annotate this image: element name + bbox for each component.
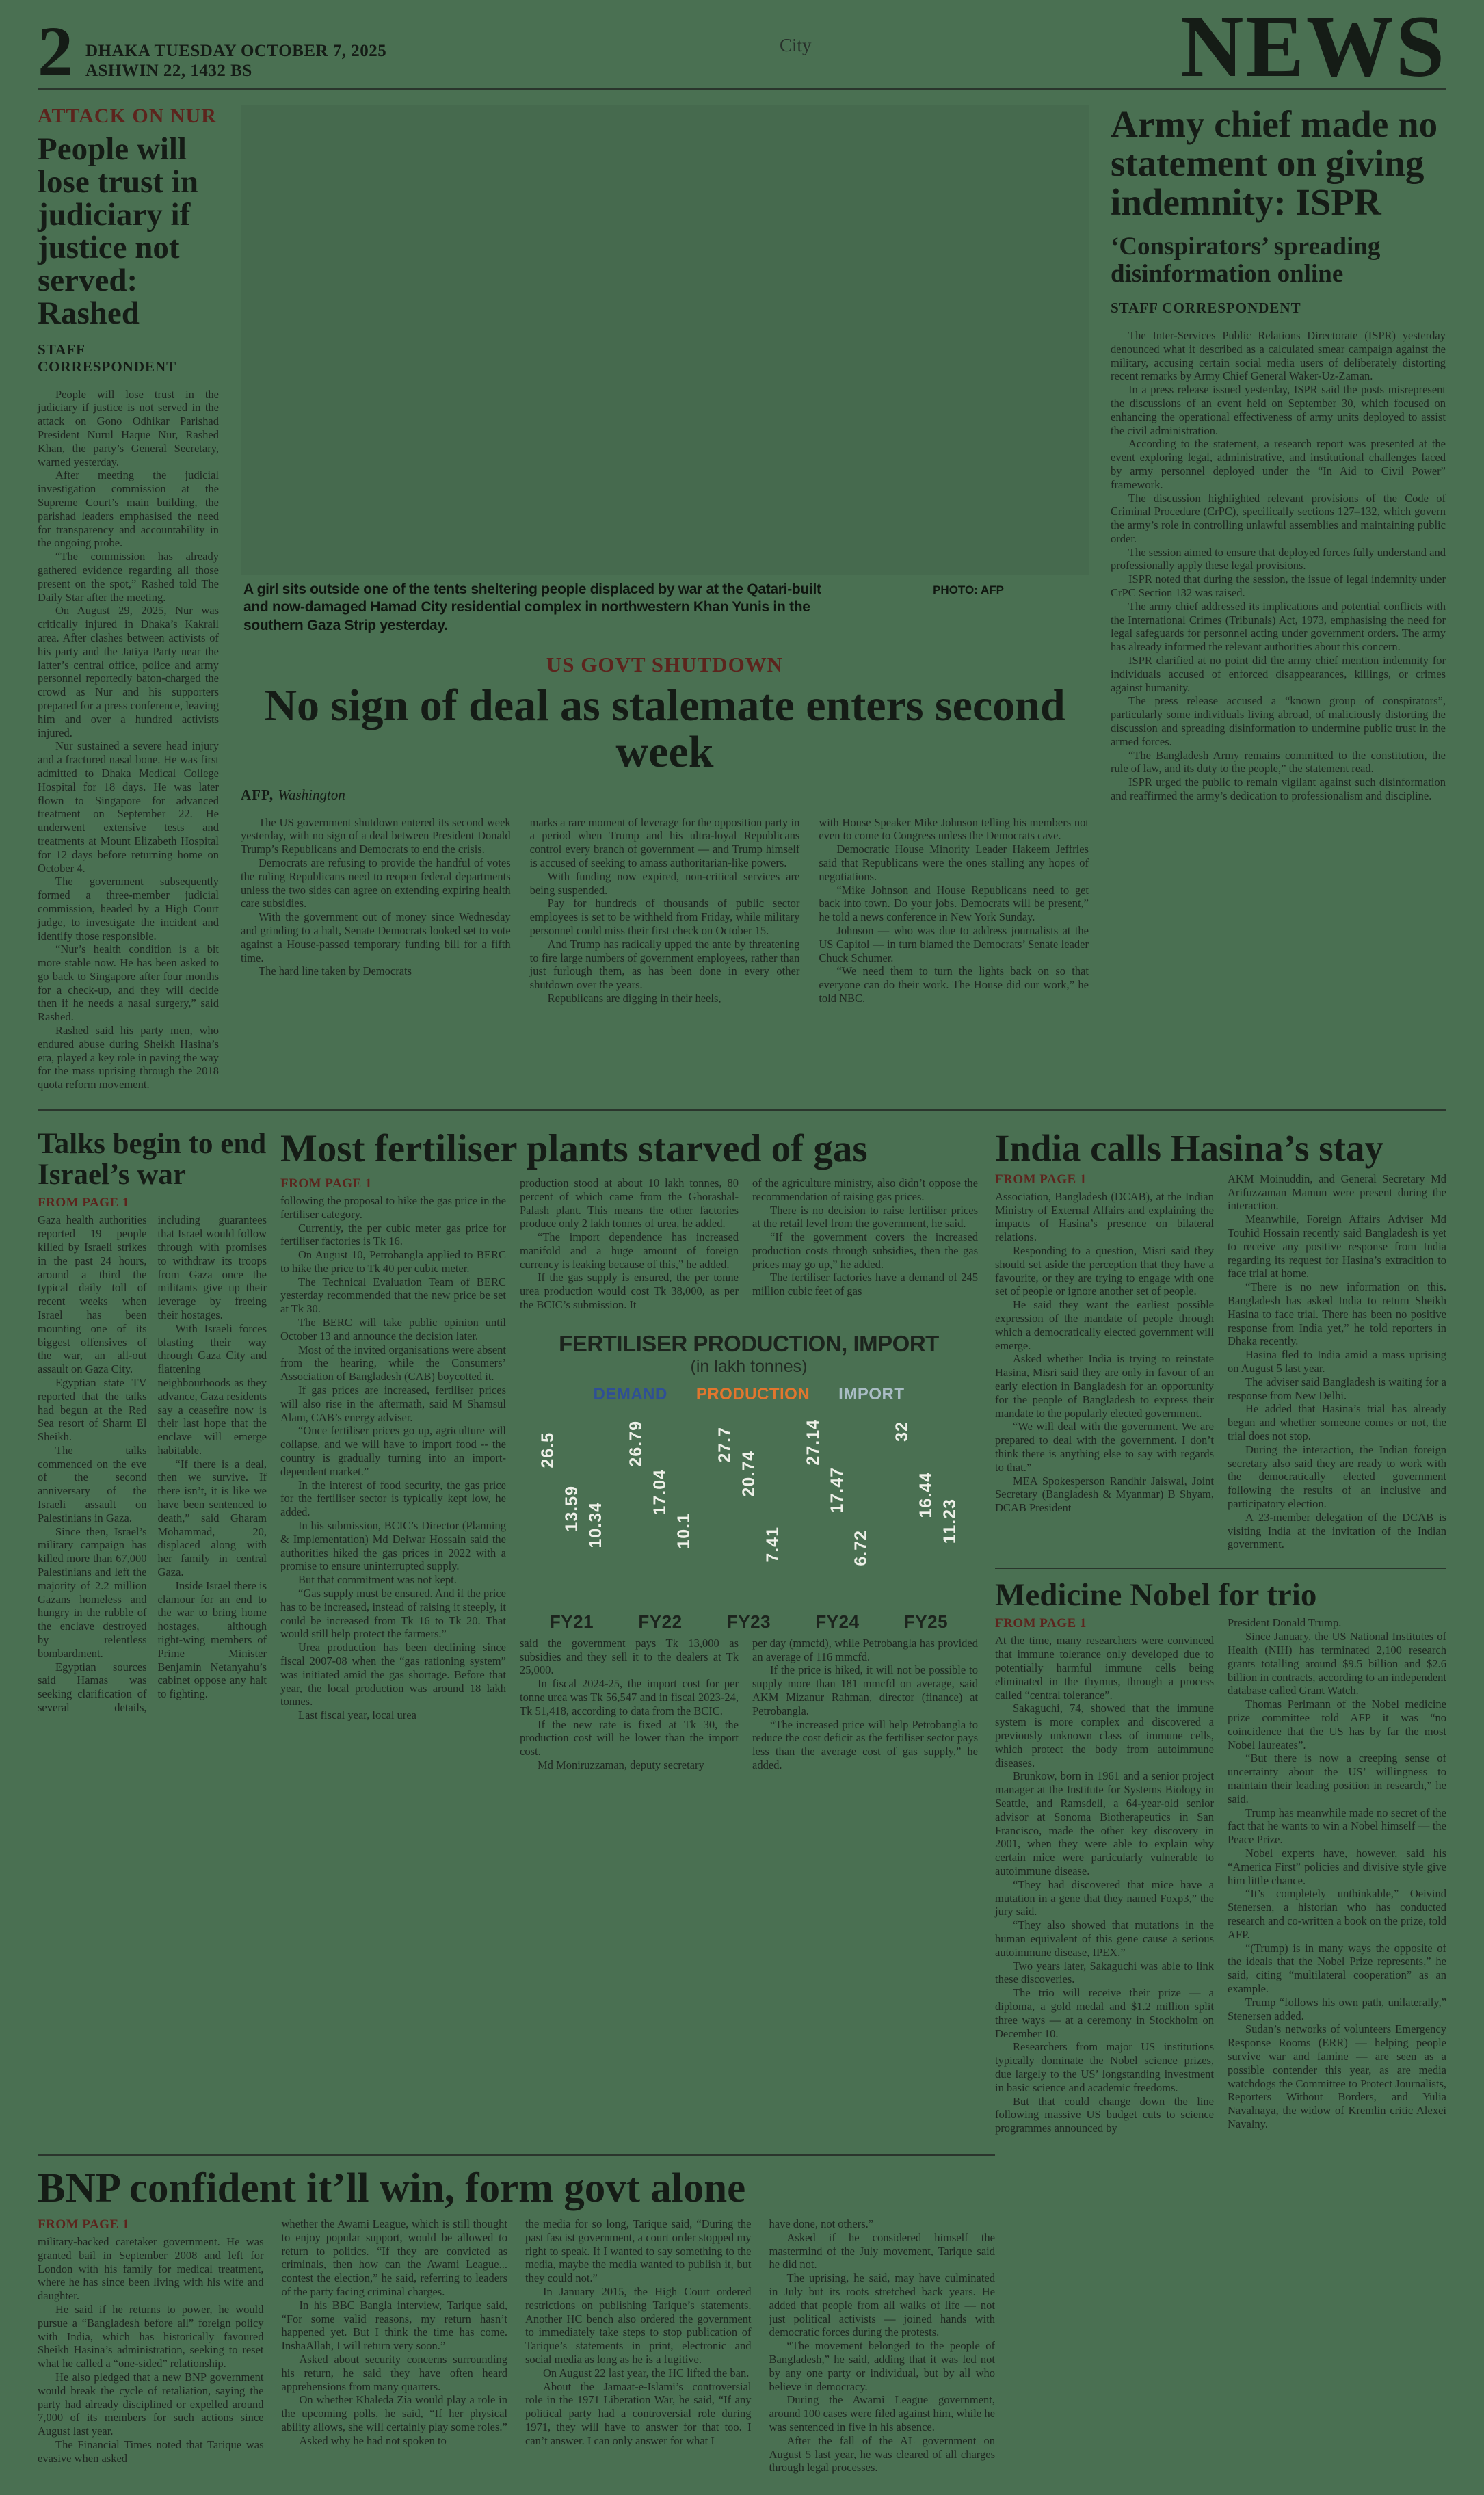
paragraph: Researchers from major US institutions t…	[995, 2040, 1214, 2094]
paragraph: The adviser said Bangladesh is waiting f…	[1228, 1375, 1446, 1403]
body-column-2: marks a rare moment of leverage for the …	[530, 816, 800, 1005]
bar-import-fy21	[585, 1550, 606, 1601]
paragraph: Responding to a question, Misri said the…	[995, 1244, 1214, 1298]
body-column-1: The US government shutdown entered its s…	[241, 816, 511, 1005]
paragraph: After meeting the judicial investigation…	[38, 468, 219, 550]
paragraph: In fiscal 2024-25, the import cost for p…	[520, 1677, 739, 1717]
paragraph: He said if he returns to power, he would…	[38, 2303, 264, 2371]
edition-label: City	[780, 35, 812, 56]
body-column-3-bottom: per day (mmcfd), while Petrobangla has p…	[752, 1637, 978, 1772]
paragraph: But that could change down the line foll…	[995, 2095, 1214, 2135]
from-page-label: FROM PAGE 1	[995, 1172, 1214, 1187]
article-headline: Army chief made no statement on giving i…	[1111, 105, 1446, 222]
from-page-label: FROM PAGE 1	[280, 1176, 506, 1191]
column-text: At the time, many researchers were convi…	[995, 1634, 1214, 2135]
paragraph: Hasina fled to India amid a mass uprisin…	[1228, 1348, 1446, 1375]
bar-demand-fy21	[538, 1471, 558, 1602]
body-column-1: FROM PAGE 1 military-backed caretaker go…	[38, 2217, 264, 2474]
article-fertiliser: Most fertiliser plants starved of gas FR…	[280, 1128, 978, 2135]
paragraph: Sudan’s networks of volunteers Emergency…	[1228, 2022, 1446, 2130]
middle-right: India calls Hasina’s stay FROM PAGE 1 As…	[995, 1128, 1446, 2135]
paragraph: If the gas supply is ensured, the per to…	[520, 1271, 739, 1311]
paragraph: marks a rare moment of leverage for the …	[530, 816, 800, 870]
body-column-1: FROM PAGE 1 following the proposal to hi…	[280, 1176, 506, 1772]
bar-production-fy23	[739, 1500, 759, 1602]
paragraph: “The movement belonged to the people of …	[769, 2339, 996, 2393]
article-medicine-nobel: Medicine Nobel for trio FROM PAGE 1 At t…	[995, 1568, 1446, 2135]
bar-demand-fy22	[626, 1470, 647, 1602]
paragraph: Association, Bangladesh (DCAB), at the I…	[995, 1190, 1214, 1244]
paragraph: “If there is a deal, then we survive. If…	[158, 1457, 267, 1579]
article-headline: Talks begin to end Israel’s war	[38, 1128, 267, 1190]
paragraph: Gaza health authorities reported 19 peop…	[38, 1213, 147, 1376]
chart-group-fy23: 27.720.747.41FY23	[715, 1384, 783, 1633]
bar-value-label: 10.34	[587, 1502, 605, 1551]
body-column-4: have done, not others.”Asked if he consi…	[769, 2217, 996, 2474]
paragraph: During the interaction, the Indian forei…	[1228, 1443, 1446, 1511]
article-kicker: US GOVT SHUTDOWN	[241, 652, 1089, 677]
paragraph: Urea production has been declining since…	[280, 1641, 506, 1708]
chart-subtitle: (in lakh tonnes)	[520, 1357, 978, 1377]
paragraph: In his submission, BCIC’s Director (Plan…	[280, 1519, 506, 1573]
bar-value-label: 17.04	[652, 1469, 669, 1518]
paragraph: Trump “follows his own path, unilaterall…	[1228, 1996, 1446, 2023]
bar-stack-import: 10.34	[585, 1384, 606, 1602]
paragraph: military-backed caretaker government. He…	[38, 2235, 264, 2303]
category-label: FY23	[727, 1611, 771, 1633]
paragraph: ISPR urged the public to remain vigilant…	[1111, 776, 1446, 803]
paragraph: Republicans are digging in their heels,	[530, 992, 800, 1005]
paragraph: The uprising, he said, may have culminat…	[769, 2271, 996, 2339]
article-bnp: BNP confident it’ll win, form govt alone…	[38, 2167, 995, 2474]
paragraph: Nobel experts have, however, said his “A…	[1228, 1847, 1446, 1887]
paragraph: “They had discovered that mice have a mu…	[995, 1878, 1214, 1918]
paragraph: Currently, the per cubic meter gas price…	[280, 1222, 506, 1249]
chart-group-fy22: 26.7917.0410.1FY22	[626, 1384, 695, 1633]
bar-value-label: 20.74	[741, 1451, 758, 1500]
paragraph: Pay for hundreds of thousands of public …	[530, 897, 800, 937]
article-headline: People will lose trust in judiciary if j…	[38, 133, 219, 330]
article-shutdown: US GOVT SHUTDOWN No sign of deal as stal…	[241, 635, 1089, 1005]
paragraph: Nur sustained a severe head injury and a…	[38, 739, 219, 875]
paragraph: The discussion highlighted relevant prov…	[1111, 492, 1446, 546]
paragraph: In January 2015, the High Court ordered …	[525, 2285, 752, 2366]
bar-cluster: 26.7917.0410.1	[626, 1384, 695, 1602]
paragraph: On August 22 last year, the HC lifted th…	[525, 2366, 752, 2380]
chart-group-fy21: 26.513.5910.34FY21	[538, 1384, 606, 1633]
paragraph: The session aimed to ensure that deploye…	[1111, 546, 1446, 573]
bar-value-label: 13.59	[564, 1486, 581, 1535]
bar-stack-production: 13.59	[561, 1384, 582, 1602]
body-column-3: with House Speaker Mike Johnson telling …	[819, 816, 1089, 1005]
article-talks: Talks begin to end Israel’s war FROM PAG…	[38, 1128, 267, 2135]
article-body: FROM PAGE 1 Association, Bangladesh (DCA…	[995, 1172, 1446, 1551]
article-body: People will lose trust in the judiciary …	[38, 388, 219, 1092]
bar-import-fy22	[674, 1552, 695, 1602]
category-label: FY24	[815, 1611, 859, 1633]
body-column-3: the media for so long, Tarique said, “Du…	[525, 2217, 752, 2474]
paragraph: On August 10, Petrobangla applied to BER…	[280, 1248, 506, 1276]
paragraph: The US government shutdown entered its s…	[241, 816, 511, 856]
body-column-1: FROM PAGE 1 Association, Bangladesh (DCA…	[995, 1172, 1214, 1551]
paragraph: “But there is now a creeping sense of un…	[1228, 1752, 1446, 1806]
paragraph: “We need them to turn the lights back on…	[819, 964, 1089, 1005]
paragraph: With Israeli forces blasting their way t…	[158, 1322, 267, 1457]
bar-value-label: 27.7	[717, 1427, 734, 1466]
article-body: FROM PAGE 1 military-backed caretaker go…	[38, 2217, 995, 2474]
from-page-label: FROM PAGE 1	[38, 2217, 264, 2232]
bar-stack-import: 11.23	[940, 1384, 960, 1602]
paragraph: “If the government covers the increased …	[752, 1230, 978, 1271]
article-body: FROM PAGE 1 following the proposal to hi…	[280, 1176, 978, 1772]
bar-cluster: 27.720.747.41	[715, 1384, 783, 1602]
paragraph: Since January, the US National Institute…	[1228, 1630, 1446, 1698]
column-text: military-backed caretaker government. He…	[38, 2235, 264, 2466]
category-label: FY21	[550, 1611, 594, 1633]
paragraph: following the proposal to hike the gas p…	[280, 1194, 506, 1222]
paragraph: Democratic House Minority Leader Hakeem …	[819, 843, 1089, 883]
paragraph: According to the statement, a research r…	[1111, 437, 1446, 491]
body-column-2-bottom: said the government pays Tk 13,000 as su…	[520, 1637, 739, 1772]
bar-import-fy25	[940, 1546, 960, 1602]
paragraph: Thomas Perlmann of the Nobel medicine pr…	[1228, 1698, 1446, 1752]
paragraph: have done, not others.”	[769, 2217, 996, 2231]
paragraph: Johnson — who was due to address journal…	[819, 924, 1089, 964]
paragraph: “The import dependence has increased man…	[520, 1230, 739, 1271]
paragraph: “It’s completely unthinkable,” Oeivind S…	[1228, 1887, 1446, 1941]
bar-production-fy24	[827, 1516, 848, 1602]
news-photo	[241, 105, 1089, 575]
photo-caption-row: A girl sits outside one of the tents she…	[241, 575, 1089, 635]
bar-value-label: 11.23	[942, 1499, 959, 1546]
body-column-3-top: of the agriculture ministry, also didn’t…	[752, 1176, 978, 1312]
paragraph: The talks commenced on the eve of the se…	[38, 1444, 147, 1525]
article-body: Gaza health authorities reported 19 peop…	[38, 1213, 267, 1714]
bar-stack-demand: 26.79	[626, 1384, 647, 1602]
bar-production-fy21	[561, 1535, 582, 1602]
paragraph: “Nur’s health condition is a bit more st…	[38, 942, 219, 1024]
paragraph: On whether Khaleda Zia would play a role…	[282, 2393, 508, 2433]
middle-left: Talks begin to end Israel’s war FROM PAG…	[38, 1128, 978, 2135]
paragraph: In his BBC Bangla interview, Tarique sai…	[282, 2299, 508, 2353]
column-text: Association, Bangladesh (DCAB), at the I…	[995, 1190, 1214, 1515]
paragraph: Egyptian state TV reported that the talk…	[38, 1376, 147, 1444]
paragraph: “Mike Johnson and House Republicans need…	[819, 884, 1089, 924]
bar-production-fy25	[916, 1521, 936, 1602]
bar-cluster: 26.513.5910.34	[538, 1384, 606, 1602]
paragraph: “The Bangladesh Army remains committed t…	[1111, 749, 1446, 776]
paragraph: the media for so long, Tarique said, “Du…	[525, 2217, 752, 2285]
paragraph: “(Trump) is in many ways the opposite of…	[1228, 1942, 1446, 1996]
paragraph: In the interest of food security, the ga…	[280, 1479, 506, 1519]
paragraph: Last fiscal year, local urea	[280, 1708, 506, 1722]
column-text: following the proposal to hike the gas p…	[280, 1194, 506, 1722]
body-column-2-top: production stood at about 10 lakh tonnes…	[520, 1176, 739, 1312]
bar-value-label: 17.47	[829, 1467, 846, 1516]
bar-stack-production: 16.44	[916, 1384, 936, 1602]
article-kicker: ATTACK ON NUR	[38, 105, 219, 128]
paragraph: AKM Moinuddin, and General Secretary Md …	[1228, 1172, 1446, 1213]
paragraph: Trump has meanwhile made no secret of th…	[1228, 1806, 1446, 1847]
paragraph: The Inter-Services Public Relations Dire…	[1111, 329, 1446, 383]
paragraph: The trio will receive their prize — a di…	[995, 1986, 1214, 2040]
paragraph: If the new rate is fixed at Tk 30, the p…	[520, 1718, 739, 1758]
body-column-2: President Donald Trump.Since January, th…	[1228, 1616, 1446, 2135]
bar-value-label: 26.79	[628, 1421, 645, 1470]
from-page-label: FROM PAGE 1	[995, 1616, 1214, 1631]
article-body: FROM PAGE 1 At the time, many researcher…	[995, 1616, 1446, 2135]
bar-value-label: 6.72	[853, 1530, 870, 1569]
chart-group-fy24: 27.1417.476.72FY24	[804, 1384, 872, 1633]
article-headline: Most fertiliser plants starved of gas	[280, 1128, 978, 1170]
section-masthead: NEWS	[1180, 12, 1446, 81]
bar-stack-demand: 26.5	[538, 1384, 558, 1602]
paragraph: Asked about security concerns surroundin…	[282, 2353, 508, 2393]
bar-value-label: 10.1	[676, 1513, 693, 1552]
bar-value-label: 32	[894, 1421, 911, 1444]
paragraph: “They also showed that mutations in the …	[995, 1918, 1214, 1959]
paragraph: In a press release issued yesterday, ISP…	[1111, 383, 1446, 437]
body-column-2: whether the Awami League, which is still…	[282, 2217, 508, 2474]
paragraph: Two years later, Sakaguchi was able to l…	[995, 1959, 1214, 1987]
paragraph: A 23-member delegation of the DCAB is vi…	[1228, 1511, 1446, 1551]
paragraph: With funding now expired, non-critical s…	[530, 870, 800, 897]
bar-production-fy22	[650, 1518, 671, 1602]
paragraph: with House Speaker Mike Johnson telling …	[819, 816, 1089, 843]
article-headline: India calls Hasina’s stay	[995, 1128, 1446, 1168]
body-column-1: FROM PAGE 1 At the time, many researcher…	[995, 1616, 1214, 2135]
paragraph: About the Jamaat-e-Islami’s controversia…	[525, 2380, 752, 2448]
article-body: The Inter-Services Public Relations Dire…	[1111, 329, 1446, 803]
paragraph: Rashed said his party men, who endured a…	[38, 1024, 219, 1092]
paragraph: He said they want the earliest possible …	[995, 1298, 1214, 1352]
paragraph: But that commitment was not kept.	[280, 1573, 506, 1587]
chart-title: FERTILISER PRODUCTION, IMPORT	[520, 1331, 978, 1357]
paragraph: The hard line taken by Democrats	[241, 964, 511, 978]
paragraph: If gas prices are increased, fertiliser …	[280, 1384, 506, 1424]
paragraph: Sakaguchi, 74, showed that the immune sy…	[995, 1702, 1214, 1769]
fertiliser-chart: FERTILISER PRODUCTION, IMPORT(in lakh to…	[520, 1312, 978, 1637]
paragraph: Inside Israel there is clamour for an en…	[158, 1579, 267, 1701]
byline-agency: AFP,	[241, 787, 274, 803]
from-page-label: FROM PAGE 1	[38, 1196, 267, 1211]
bar-value-label: 7.41	[765, 1527, 782, 1566]
article-byline: AFP, Washington	[241, 787, 1089, 804]
paragraph: The government subsequently formed a thr…	[38, 875, 219, 942]
paragraph: President Donald Trump.	[1228, 1616, 1446, 1630]
bar-stack-import: 6.72	[851, 1384, 872, 1602]
bar-import-fy23	[763, 1566, 783, 1602]
paragraph: “The commission has already gathered evi…	[38, 550, 219, 604]
paragraph: Md Moniruzzaman, deputy secretary	[520, 1758, 739, 1772]
paragraph: “The increased price will help Petrobang…	[752, 1718, 978, 1772]
chart-plot: 26.513.5910.34FY2126.7917.0410.1FY2227.7…	[520, 1407, 978, 1633]
body-column-2: AKM Moinuddin, and General Secretary Md …	[1228, 1172, 1446, 1551]
paragraph: There is no decision to raise fertiliser…	[752, 1204, 978, 1231]
paragraph: With the government out of money since W…	[241, 910, 511, 964]
paragraph: If the price is hiked, it will not be po…	[752, 1663, 978, 1717]
paragraph: ISPR noted that during the session, the …	[1111, 572, 1446, 600]
paragraph: After the fall of the AL government on A…	[769, 2434, 996, 2474]
category-label: FY25	[904, 1611, 948, 1633]
paragraph: He also pledged that a new BNP governmen…	[38, 2371, 264, 2438]
category-label: FY22	[638, 1611, 682, 1633]
bar-value-label: 16.44	[918, 1472, 935, 1521]
paragraph: production stood at about 10 lakh tonnes…	[520, 1176, 739, 1230]
bar-stack-import: 7.41	[763, 1384, 783, 1602]
paragraph: per day (mmcfd), while Petrobangla has p…	[752, 1637, 978, 1664]
paragraph: The army chief addressed its implication…	[1111, 600, 1446, 654]
bar-import-fy24	[851, 1569, 872, 1602]
article-byline: STAFF CORRESPONDENT	[38, 341, 219, 375]
bar-stack-production: 17.47	[827, 1384, 848, 1602]
date-block: DHAKA TUESDAY OCTOBER 7, 2025 ASHWIN 22,…	[85, 41, 386, 81]
date-line-2: ASHWIN 22, 1432 BS	[85, 61, 386, 81]
paragraph: The BERC will take public opinion until …	[280, 1316, 506, 1343]
paragraph: The press release accused a “known group…	[1111, 694, 1446, 748]
article-body: The US government shutdown entered its s…	[241, 816, 1089, 1005]
date-line-1: DHAKA TUESDAY OCTOBER 7, 2025	[85, 41, 386, 61]
paragraph: Democrats are refusing to provide the ha…	[241, 856, 511, 910]
article-byline: STAFF CORRESPONDENT	[1111, 300, 1446, 317]
bar-stack-demand: 27.14	[804, 1384, 824, 1602]
paragraph: Since then, Israel’s military campaign h…	[38, 1525, 147, 1661]
bar-stack-demand: 32	[892, 1384, 912, 1602]
paragraph: MEA Spokesperson Randhir Jaiswal, Joint …	[995, 1475, 1214, 1515]
paragraph: of the agriculture ministry, also didn’t…	[752, 1176, 978, 1204]
bar-demand-fy24	[804, 1468, 824, 1601]
article-india: India calls Hasina’s stay FROM PAGE 1 As…	[995, 1128, 1446, 1551]
top-section: ATTACK ON NUR People will lose trust in …	[38, 90, 1446, 1092]
paragraph: He added that Hasina’s trial has already…	[1228, 1402, 1446, 1442]
paragraph: Most of the invited organisations were a…	[280, 1343, 506, 1384]
paragraph: At the time, many researchers were convi…	[995, 1634, 1214, 1702]
paragraph: During the Awami League government, arou…	[769, 2393, 996, 2433]
bar-stack-demand: 27.7	[715, 1384, 735, 1602]
paragraph: whether the Awami League, which is still…	[282, 2217, 508, 2299]
paragraph: Asked why he had not spoken to	[282, 2434, 508, 2448]
paragraph: Meanwhile, Foreign Affairs Adviser Md To…	[1228, 1213, 1446, 1280]
bar-stack-import: 10.1	[674, 1384, 695, 1602]
bar-demand-fy23	[715, 1465, 735, 1601]
bottom-section: BNP confident it’ll win, form govt alone…	[38, 2154, 995, 2474]
paragraph: Asked if he considered himself the maste…	[769, 2231, 996, 2271]
page-number: 2	[38, 23, 73, 81]
article-ispr: Army chief made no statement on giving i…	[1111, 105, 1446, 1092]
paragraph: On August 29, 2025, Nur was critically i…	[38, 604, 219, 739]
article-headline: Medicine Nobel for trio	[995, 1579, 1446, 1612]
paragraph: ISPR clarified at no point did the army …	[1111, 654, 1446, 694]
bar-cluster: 3216.4411.23	[892, 1384, 960, 1602]
paragraph: Brunkow, born in 1961 and a senior proje…	[995, 1769, 1214, 1877]
photo-credit: PHOTO: AFP	[933, 581, 1004, 597]
chart-group-fy25: 3216.4411.23FY25	[892, 1384, 960, 1633]
article-headline: BNP confident it’ll win, form govt alone	[38, 2167, 995, 2210]
bar-value-label: 26.5	[540, 1432, 557, 1471]
middle-section: Talks begin to end Israel’s war FROM PAG…	[38, 1111, 1446, 2135]
paragraph: The Financial Times noted that Tarique w…	[38, 2438, 264, 2466]
bar-demand-fy25	[892, 1444, 912, 1601]
bar-cluster: 27.1417.476.72	[804, 1384, 872, 1602]
photo-caption: A girl sits outside one of the tents she…	[243, 581, 838, 635]
paragraph: And Trump has radically upped the ante b…	[530, 938, 800, 992]
paragraph: “We will deal with the government. We ar…	[995, 1420, 1214, 1474]
paragraph: The Technical Evaluation Team of BERC ye…	[280, 1276, 506, 1316]
article-headline: No sign of deal as stalemate enters seco…	[241, 683, 1089, 776]
paragraph: “Once fertiliser prices go up, agricultu…	[280, 1424, 506, 1478]
bar-stack-production: 17.04	[650, 1384, 671, 1602]
paragraph: People will lose trust in the judiciary …	[38, 388, 219, 469]
paragraph: Asked whether India is trying to reinsta…	[995, 1352, 1214, 1420]
paragraph: said the government pays Tk 13,000 as su…	[520, 1637, 739, 1677]
paragraph: “Gas supply must be ensured. And if the …	[280, 1587, 506, 1641]
newspaper-page: 2 DHAKA TUESDAY OCTOBER 7, 2025 ASHWIN 2…	[0, 0, 1484, 2495]
paragraph: The fertiliser factories have a demand o…	[752, 1271, 978, 1298]
paragraph: “There is no new information on this. Ba…	[1228, 1280, 1446, 1348]
bar-stack-production: 20.74	[739, 1384, 759, 1602]
article-subhead: ‘Conspirators’ spreading disinformation …	[1111, 233, 1446, 289]
byline-location: Washington	[278, 787, 345, 803]
page-header: 2 DHAKA TUESDAY OCTOBER 7, 2025 ASHWIN 2…	[38, 0, 1446, 90]
bar-value-label: 27.14	[805, 1419, 822, 1468]
middle-column: A girl sits outside one of the tents she…	[241, 105, 1089, 1092]
article-nur: ATTACK ON NUR People will lose trust in …	[38, 105, 219, 1092]
